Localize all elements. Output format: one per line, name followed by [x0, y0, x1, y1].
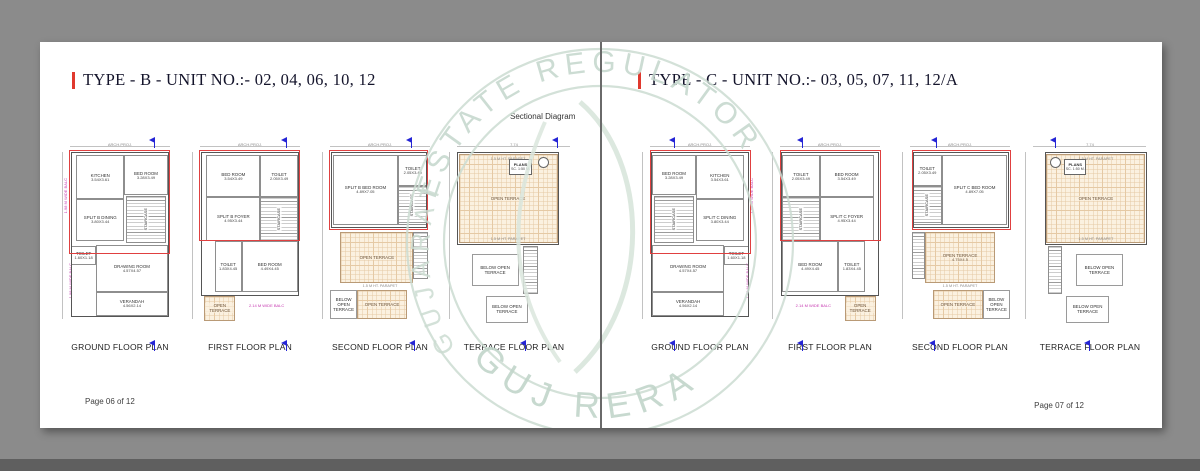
plan-frame: KITCHEN3.54X3.61BED ROOM3.28X3.49SPLIT B…	[68, 150, 172, 332]
building-redline	[780, 150, 881, 241]
building-redline	[199, 150, 300, 241]
floor-plan: 7.74OPEN TERRACE1.5 M HT. PARAPET1.5 M H…	[455, 150, 573, 332]
floor-plan: ARCH.PROJ.BED ROOM3.54X3.49TOILET2.05X3.…	[198, 150, 302, 332]
section-marker-icon	[149, 340, 155, 346]
section-marker-icon	[797, 340, 803, 346]
building-redline	[329, 150, 428, 230]
plans-stamp: PLANSSC. 1:50 M.	[509, 159, 531, 175]
staircase	[912, 232, 924, 279]
section-marker-icon	[669, 340, 675, 346]
section-marker-icon	[931, 137, 937, 143]
plan-frame: BED ROOM3.54X3.49TOILET2.05X3.49SPLIT B …	[198, 150, 302, 332]
floor-plan: ARCH.PROJ.SPLIT B BED ROOM4.89X7.05TOILE…	[328, 150, 432, 332]
staircase	[1048, 246, 1062, 293]
plans-row: ARCH.PROJ.KITCHEN3.54X3.61BED ROOM3.28X3…	[40, 42, 600, 428]
building-redline	[650, 150, 751, 254]
plan-frame: BED ROOM3.28X3.49KITCHEN3.54X3.61STAIRCA…	[648, 150, 752, 332]
open-terrace-hatch: OPEN TERRACE	[357, 290, 407, 319]
below-terrace-area: BELOW OPEN TERRACE	[330, 290, 357, 319]
section-marker-icon	[281, 340, 287, 346]
below-terrace-area: BELOW OPEN TERRACE	[472, 254, 519, 287]
balcony-note: 2.14 M WIDE BALC	[784, 299, 842, 314]
section-marker-icon	[552, 137, 558, 143]
below-terrace-area: BELOW OPEN TERRACE	[983, 290, 1010, 319]
building-redline	[912, 150, 1011, 230]
open-terrace-hatch: OPEN TERRACE4.75X4.5	[925, 232, 996, 283]
section-marker-icon	[929, 340, 935, 346]
floor-plan: ARCH.PROJ.TOILET2.05X3.49SPLIT C BED ROO…	[908, 150, 1012, 332]
stamp-circle-icon	[538, 157, 549, 168]
plan-frame: SPLIT B BED ROOM4.89X7.05TOILET2.05X3.49…	[328, 150, 432, 332]
below-terrace-area: BELOW OPEN TERRACE	[1076, 254, 1123, 287]
page-number: Page 06 of 12	[85, 397, 135, 406]
open-terrace-hatch: OPEN TERRACE	[340, 232, 413, 283]
open-terrace-hatch: OPEN TERRACE	[933, 290, 983, 319]
below-terrace-area: BELOW OPEN TERRACE	[486, 296, 528, 323]
page-divider	[600, 42, 602, 428]
staircase	[413, 232, 428, 279]
document-spread: TYPE - B - UNIT NO.:- 02, 04, 06, 10, 12…	[40, 42, 1162, 428]
section-marker-icon	[281, 137, 287, 143]
plan-frame: OPEN TERRACE1.5 M HT. PARAPET1.5 M HT. P…	[1031, 150, 1149, 332]
plans-stamp: PLANSSC. 1:50 M.	[1064, 159, 1086, 175]
bottom-strip	[0, 459, 1200, 471]
plan-frame: TOILET2.05X3.49BED ROOM3.54X3.49STAIRCAS…	[778, 150, 882, 332]
section-marker-icon	[669, 137, 675, 143]
open-terrace-hatch: OPEN TERRACE	[204, 296, 235, 321]
page-right: TYPE - C - UNIT NO.:- 03, 05, 07, 11, 12…	[602, 42, 1162, 428]
section-marker-icon	[520, 340, 526, 346]
page-left: TYPE - B - UNIT NO.:- 02, 04, 06, 10, 12…	[40, 42, 600, 428]
building-redline	[69, 150, 170, 254]
parapet-note: 1.5 M HT. PARAPET	[929, 283, 991, 290]
plans-row: ARCH.PROJ.BED ROOM3.28X3.49KITCHEN3.54X3…	[602, 42, 1162, 428]
section-marker-icon	[406, 137, 412, 143]
section-marker-icon	[1050, 137, 1056, 143]
plan-frame: OPEN TERRACE1.5 M HT. PARAPET1.5 M HT. P…	[455, 150, 573, 332]
parapet-note: 1.5 M HT. PARAPET	[1061, 236, 1132, 243]
parapet-note: 1.5 M HT. PARAPET	[349, 283, 411, 290]
section-marker-icon	[797, 137, 803, 143]
floor-plan: ARCH.PROJ.TOILET2.05X3.49BED ROOM3.54X3.…	[778, 150, 882, 332]
staircase	[523, 246, 537, 293]
open-terrace-hatch: OPEN TERRACE	[845, 296, 876, 321]
document-canvas: TYPE - B - UNIT NO.:- 02, 04, 06, 10, 12…	[0, 0, 1200, 471]
plan-caption: GROUND FLOOR PLAN	[651, 342, 748, 352]
page-number: Page 07 of 12	[1034, 401, 1084, 410]
building-outline	[1045, 152, 1146, 245]
parapet-note: 1.5 M HT. PARAPET	[473, 155, 544, 162]
plan-caption: SECOND FLOOR PLAN	[912, 342, 1008, 352]
floor-plan: ARCH.PROJ.BED ROOM3.28X3.49KITCHEN3.54X3…	[648, 150, 752, 332]
section-marker-icon	[149, 137, 155, 143]
floor-plan: ARCH.PROJ.KITCHEN3.54X3.61BED ROOM3.28X3…	[68, 150, 172, 332]
floor-plan: 7.74OPEN TERRACE1.5 M HT. PARAPET1.5 M H…	[1031, 150, 1149, 332]
parapet-note: 1.5 M HT. PARAPET	[473, 236, 544, 243]
plan-caption: FIRST FLOOR PLAN	[208, 342, 292, 352]
section-marker-icon	[409, 340, 415, 346]
plan-caption: TERRACE FLOOR PLAN	[464, 342, 564, 352]
below-terrace-area: BELOW OPEN TERRACE	[1066, 296, 1108, 323]
plan-frame: TOILET2.05X3.49SPLIT C BED ROOM4.89X7.05…	[908, 150, 1012, 332]
section-marker-icon	[1084, 340, 1090, 346]
balcony-note: 2.14 M WIDE BALC	[238, 299, 296, 314]
